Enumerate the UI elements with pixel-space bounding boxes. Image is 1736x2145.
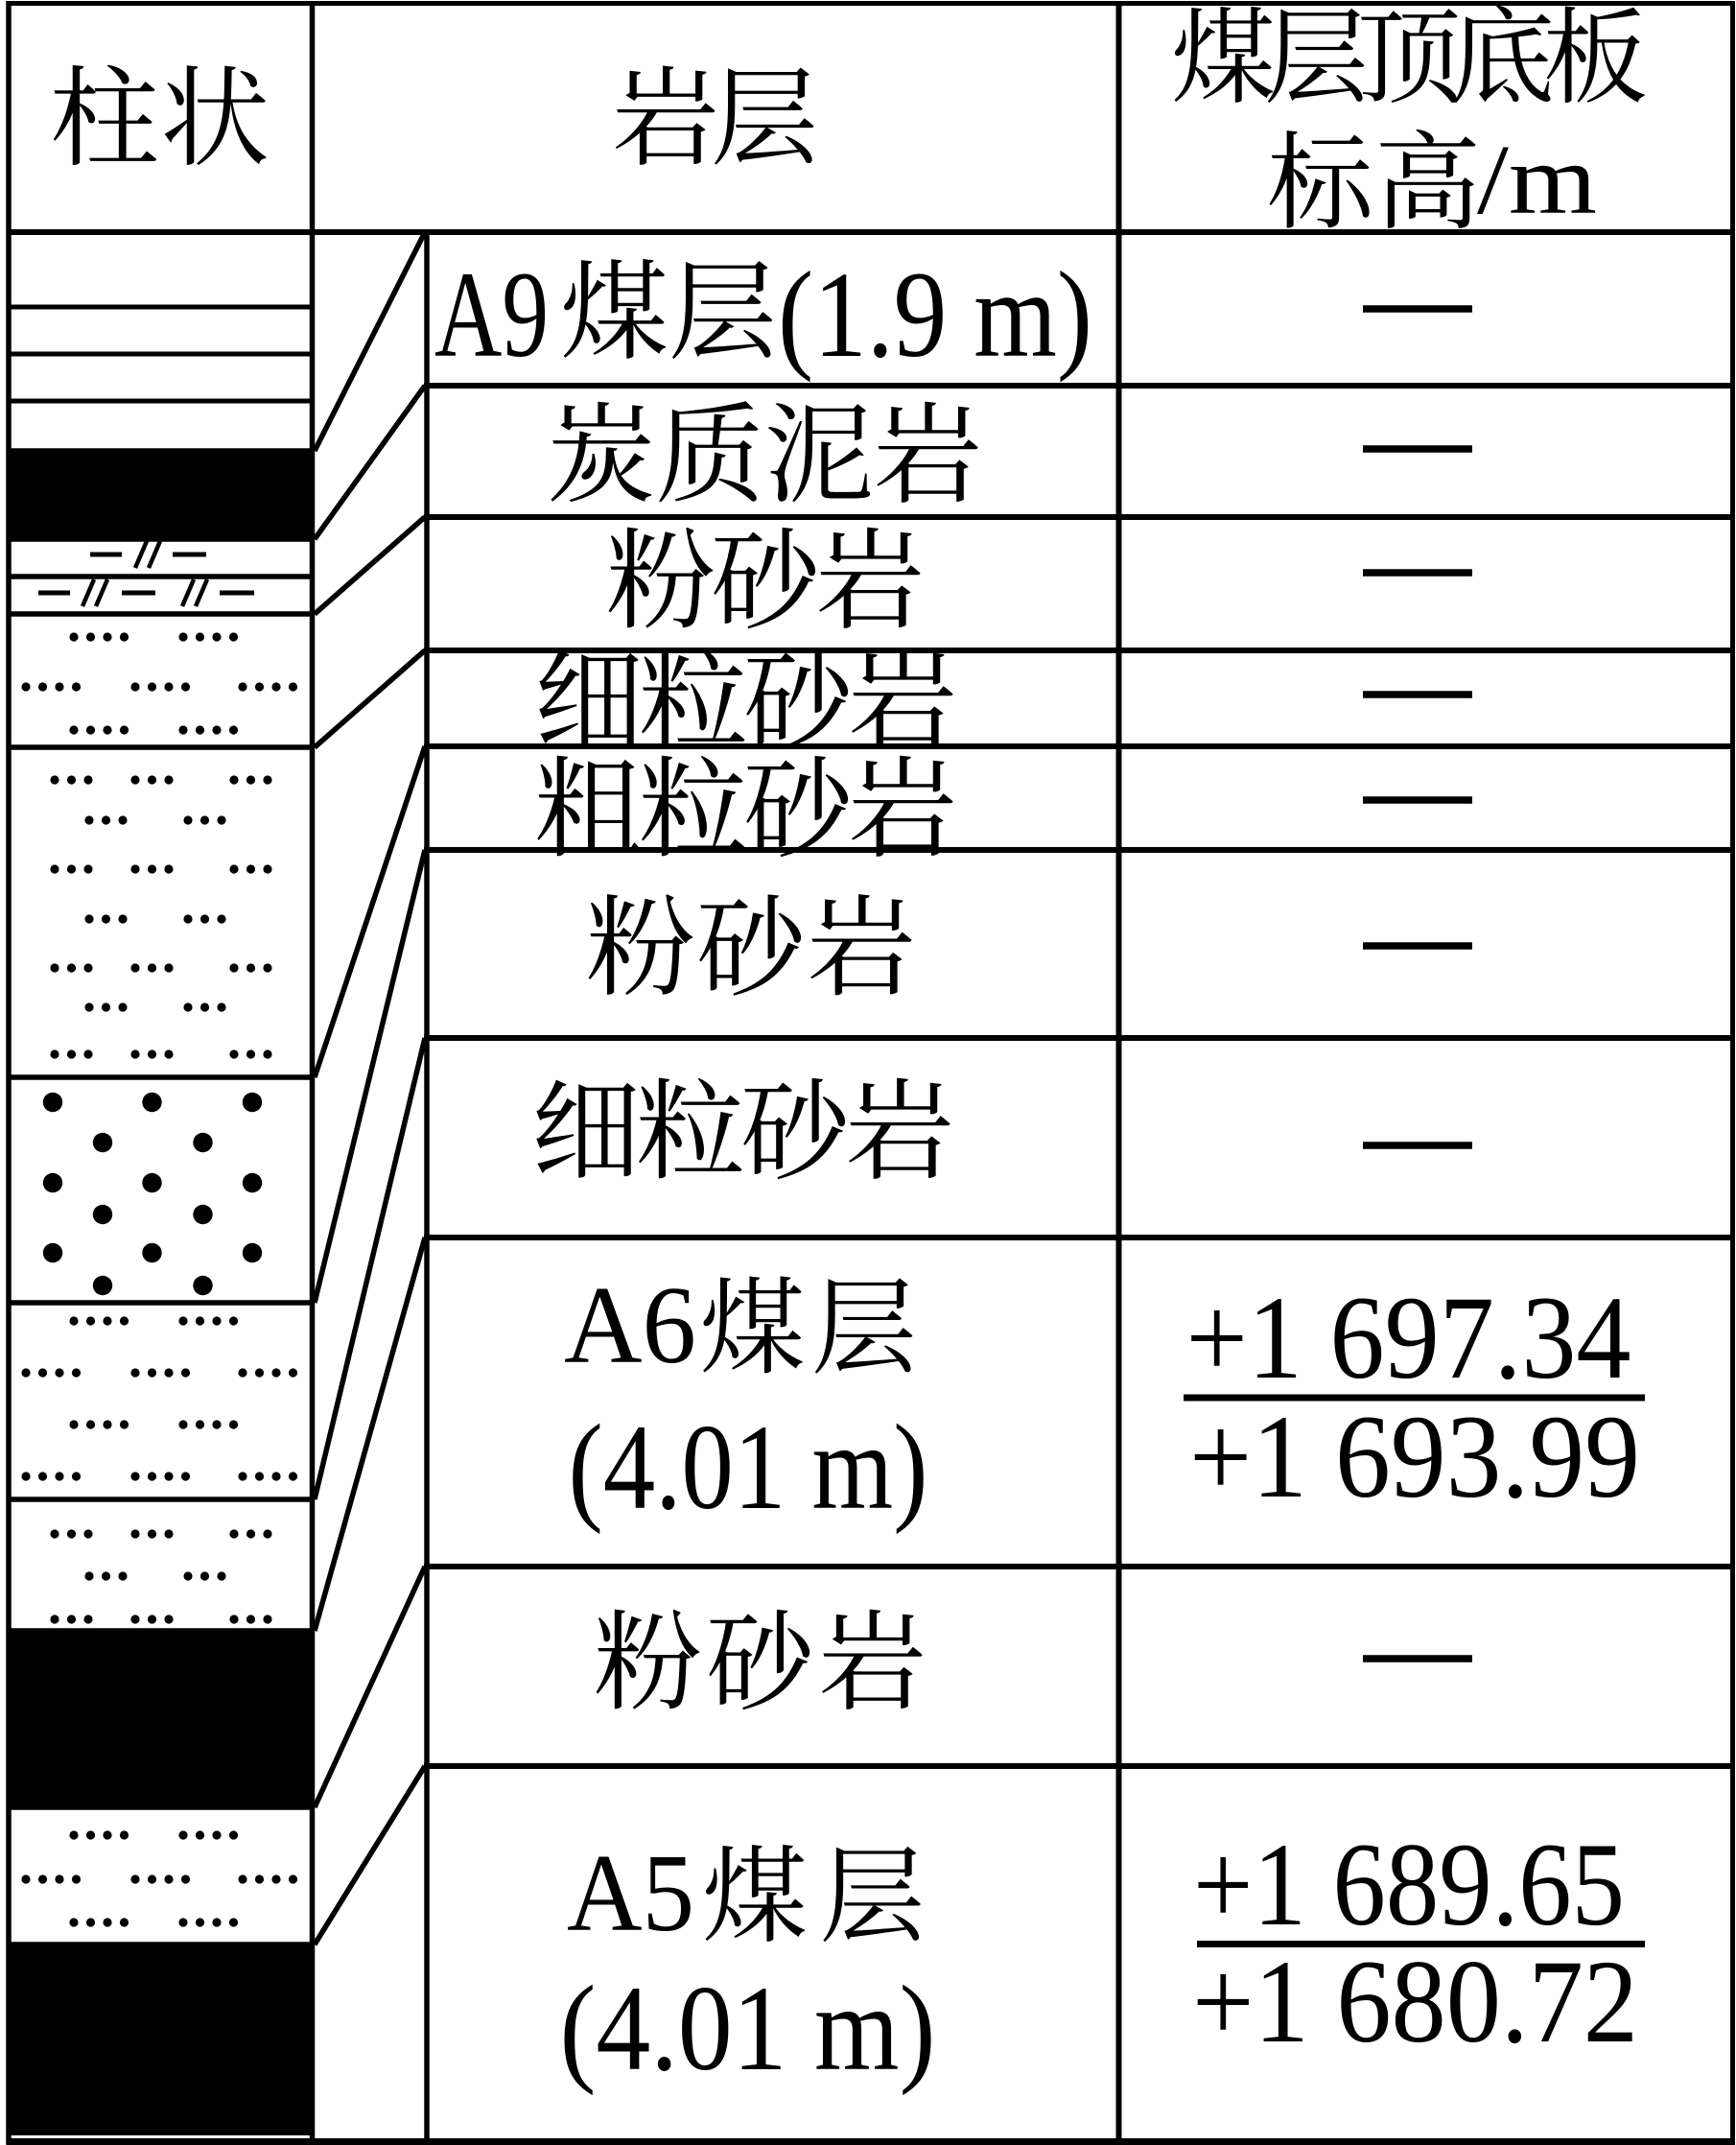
svg-text:+1 697.34: +1 697.34 (1186, 1272, 1631, 1403)
svg-text:(4.01 m): (4.01 m) (569, 1401, 928, 1535)
svg-text:A5: A5 (567, 1832, 694, 1954)
svg-text:(4.01 m): (4.01 m) (560, 1962, 936, 2096)
svg-text:/m: /m (1477, 125, 1597, 235)
svg-text:A6: A6 (564, 1264, 696, 1386)
svg-text:(1.9 m): (1.9 m) (778, 247, 1092, 383)
svg-text:+1 689.65: +1 689.65 (1193, 1819, 1625, 1950)
svg-text:+1 693.99: +1 693.99 (1189, 1391, 1640, 1522)
svg-text:A9: A9 (434, 247, 549, 383)
svg-text:+1 680.72: +1 680.72 (1192, 1936, 1638, 2067)
